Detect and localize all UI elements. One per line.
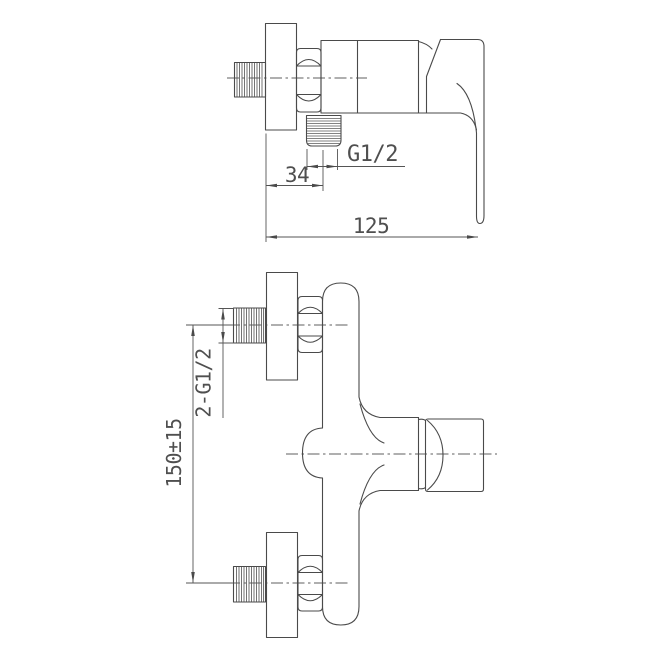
handle-blade <box>441 40 485 224</box>
handle-inner-curve <box>457 84 477 134</box>
outlet-thread-side <box>307 116 342 147</box>
arrowhead <box>221 309 225 320</box>
dimension-label-inlet-spacing: 150±15 <box>162 418 186 487</box>
handle-cap <box>426 419 484 492</box>
front-view <box>228 273 497 638</box>
front-view-dimensions: 150±15 2-G1/2 <box>162 309 234 584</box>
inlet-thread-bottom-hatch <box>237 567 264 602</box>
wall-plate-side <box>266 24 297 131</box>
inlet-thread-bottom-front <box>234 567 266 603</box>
dimension-overall-depth: 125 <box>266 214 478 239</box>
dimension-label-overall-depth: 125 <box>353 214 389 238</box>
dimension-label-outlet-thread: G1/2 <box>347 142 398 167</box>
technical-drawing-canvas: G1/2 34 125 <box>0 0 652 652</box>
arrowhead <box>191 325 195 336</box>
inlet-thread-hatch <box>237 63 262 97</box>
spout-bulge <box>303 428 323 478</box>
valve-body-side <box>321 41 419 114</box>
technical-drawing-page: G1/2 34 125 <box>0 0 652 652</box>
lever-handle-front <box>419 419 484 492</box>
handle-underside <box>419 113 477 130</box>
wall-plate-bottom-front <box>267 533 298 638</box>
lever-handle-side <box>419 40 485 224</box>
arrowhead <box>266 235 277 239</box>
arrowhead <box>467 235 478 239</box>
dimension-label-outlet-offset: 34 <box>285 163 309 187</box>
outlet-thread-hatch <box>307 119 341 144</box>
dimension-label-inlet-threads: 2-G1/2 <box>192 348 216 417</box>
handle-fillet <box>419 42 433 50</box>
arrowhead <box>266 184 277 188</box>
arrowhead <box>191 572 195 583</box>
arrowhead <box>221 332 225 343</box>
dimension-outlet-offset: 34 <box>266 134 323 243</box>
inlet-thread-top-hatch <box>237 309 264 343</box>
wall-plate-top-front <box>267 273 298 381</box>
arrowhead <box>327 165 338 169</box>
handle-cone-curve <box>428 421 444 491</box>
side-view-dimensions: G1/2 34 125 <box>266 134 478 243</box>
hex-nut-side <box>297 49 322 113</box>
inlet-thread-side <box>235 63 266 98</box>
extension-lines <box>266 134 323 243</box>
extension-lines <box>219 309 235 344</box>
inlet-thread-top-front <box>234 308 266 343</box>
hex-nut-top-front <box>298 297 323 353</box>
handle-neck <box>427 40 441 114</box>
arrowhead <box>312 184 323 188</box>
